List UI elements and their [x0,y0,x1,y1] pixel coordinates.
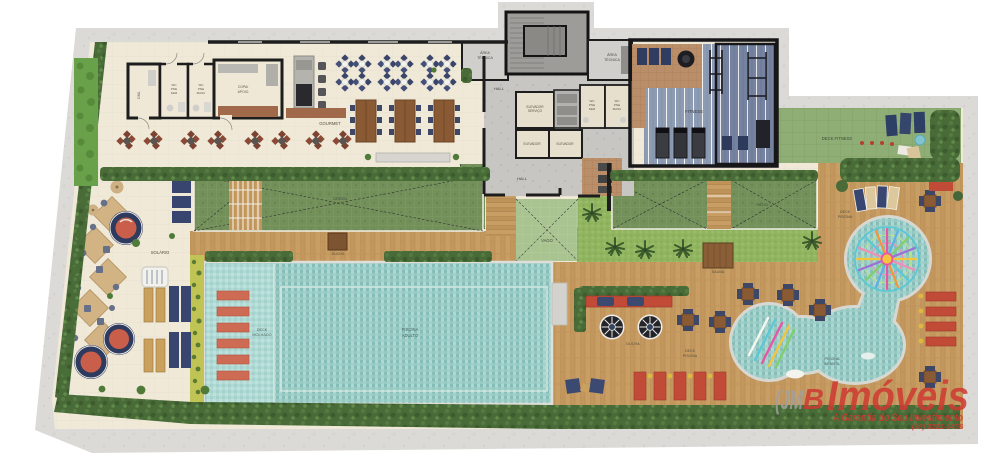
svg-text:ELEVADOR: ELEVADOR [523,142,541,146]
svg-text:GREEN: GREEN [333,196,347,201]
svg-text:TÉCNICA: TÉCNICA [604,57,620,62]
svg-text:INFANTIL: INFANTIL [824,362,841,366]
svg-text:APOIO: APOIO [238,90,249,94]
svg-text:ELEVADOR: ELEVADOR [556,142,574,146]
svg-text:FEM: FEM [589,107,596,111]
svg-text:DECK: DECK [257,328,268,332]
svg-text:MOLHADO: MOLHADO [252,333,271,337]
svg-text:HALL: HALL [517,176,528,181]
svg-text:DUCHA: DUCHA [332,252,345,256]
svg-text:DML: DML [137,91,141,98]
svg-text:ÁREA: ÁREA [480,51,490,55]
svg-text:VAGO: VAGO [541,238,554,243]
svg-text:(JM: (JM [775,385,803,415]
svg-text:PISCINA: PISCINA [402,327,419,332]
svg-text:GOURMET: GOURMET [319,121,341,126]
svg-text:SERVIÇO: SERVIÇO [528,109,543,113]
svg-text:DECK: DECK [840,210,851,214]
svg-text:SAUNA: SAUNA [712,270,725,274]
svg-text:DECK FITNESS: DECK FITNESS [822,136,853,141]
svg-text:PATIO: PATIO [756,202,767,207]
svg-text:MASC: MASC [197,91,207,95]
svg-text:COPA/: COPA/ [238,85,248,89]
svg-text:PISCINA: PISCINA [683,354,698,358]
svg-text:PISCINA: PISCINA [838,215,853,219]
svg-text:SOLÁRIO: SOLÁRIO [151,250,170,255]
svg-text:PISCINA: PISCINA [824,357,840,361]
svg-text:DUCHA: DUCHA [626,342,640,346]
svg-text:HALL: HALL [494,86,505,91]
svg-text:B: B [803,384,824,416]
svg-text:FEM: FEM [171,91,178,95]
svg-text:FITNESS: FITNESS [685,109,703,114]
svg-text:ÁREA: ÁREA [607,53,617,57]
svg-text:(38) 3221-6456: (38) 3221-6456 [912,422,964,431]
svg-text:ADULTO: ADULTO [402,333,419,338]
svg-text:DECK: DECK [685,349,696,353]
svg-text:MASC: MASC [613,107,623,111]
